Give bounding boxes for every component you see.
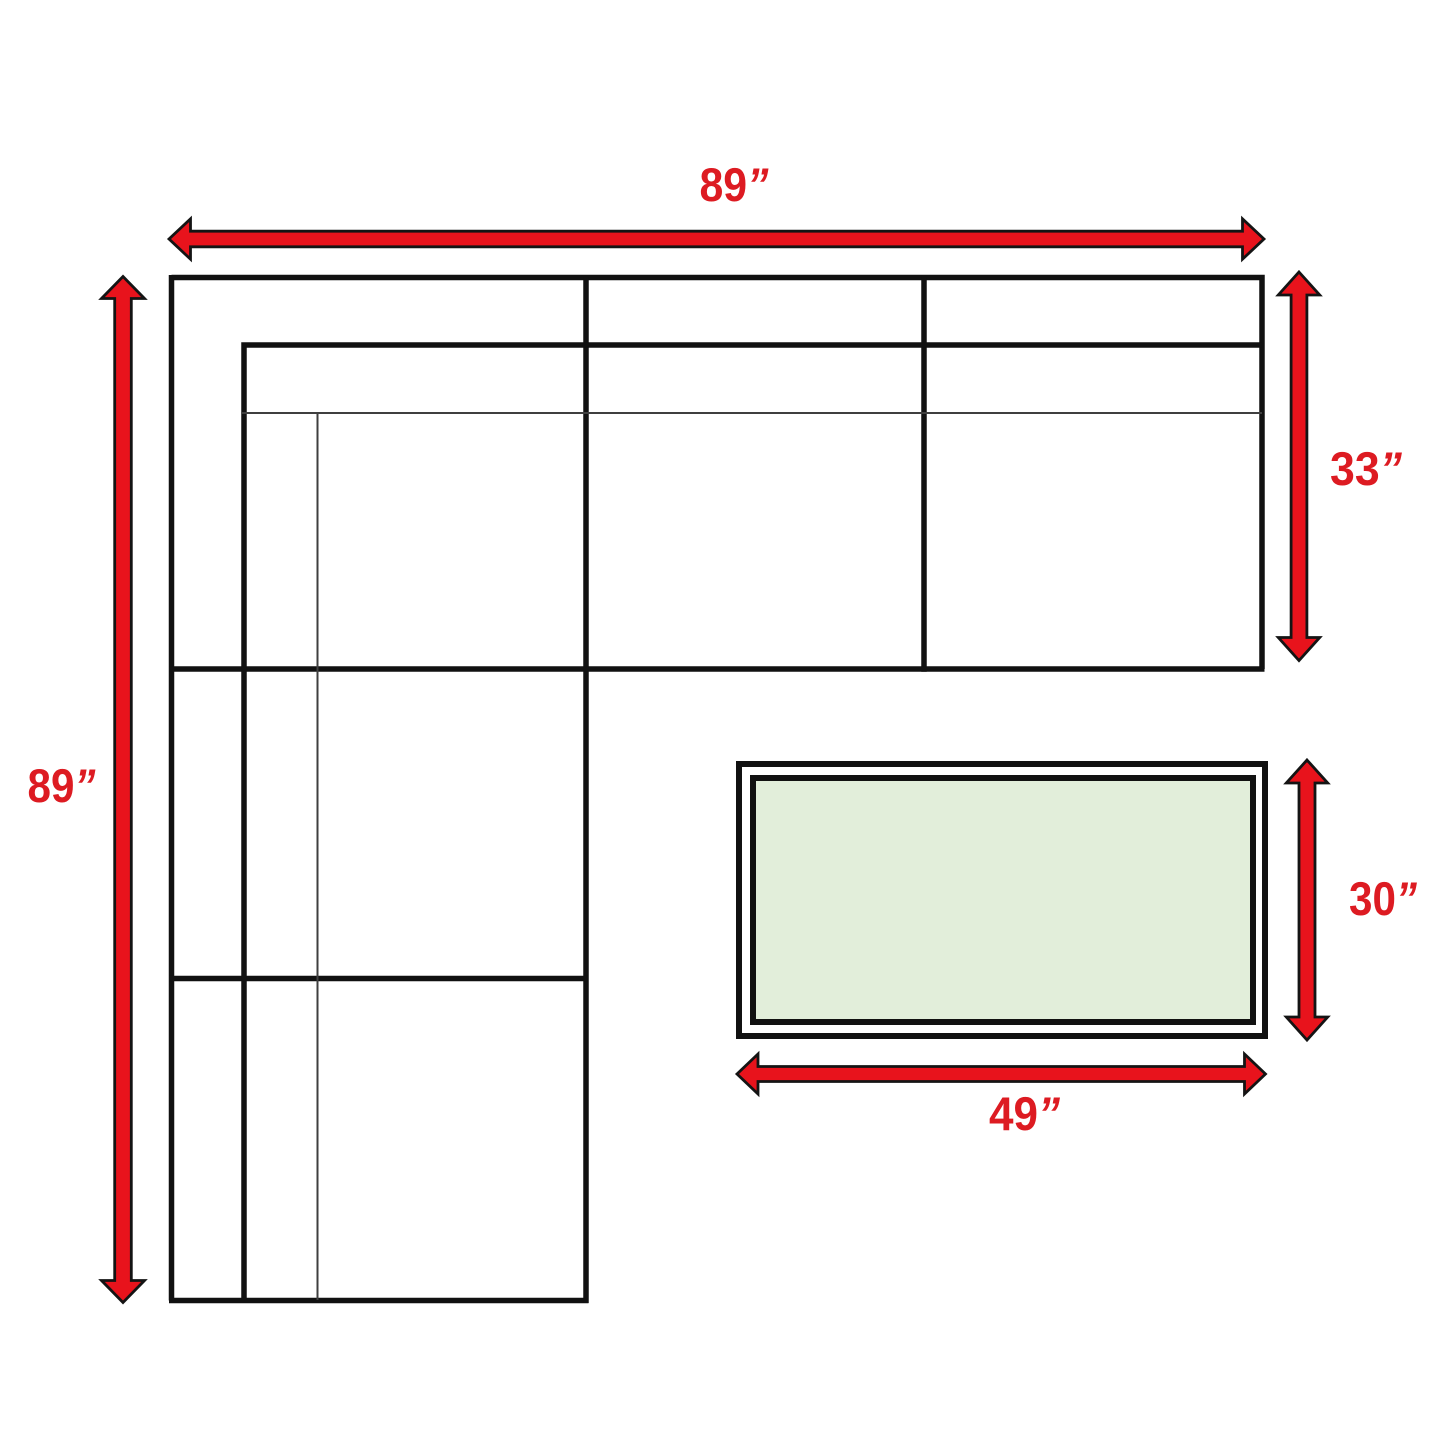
svg-text:89”: 89” bbox=[28, 759, 96, 812]
svg-text:89”: 89” bbox=[700, 158, 769, 211]
svg-text:30”: 30” bbox=[1349, 872, 1417, 925]
svg-text:33”: 33” bbox=[1330, 442, 1402, 495]
svg-text:49”: 49” bbox=[989, 1087, 1060, 1140]
